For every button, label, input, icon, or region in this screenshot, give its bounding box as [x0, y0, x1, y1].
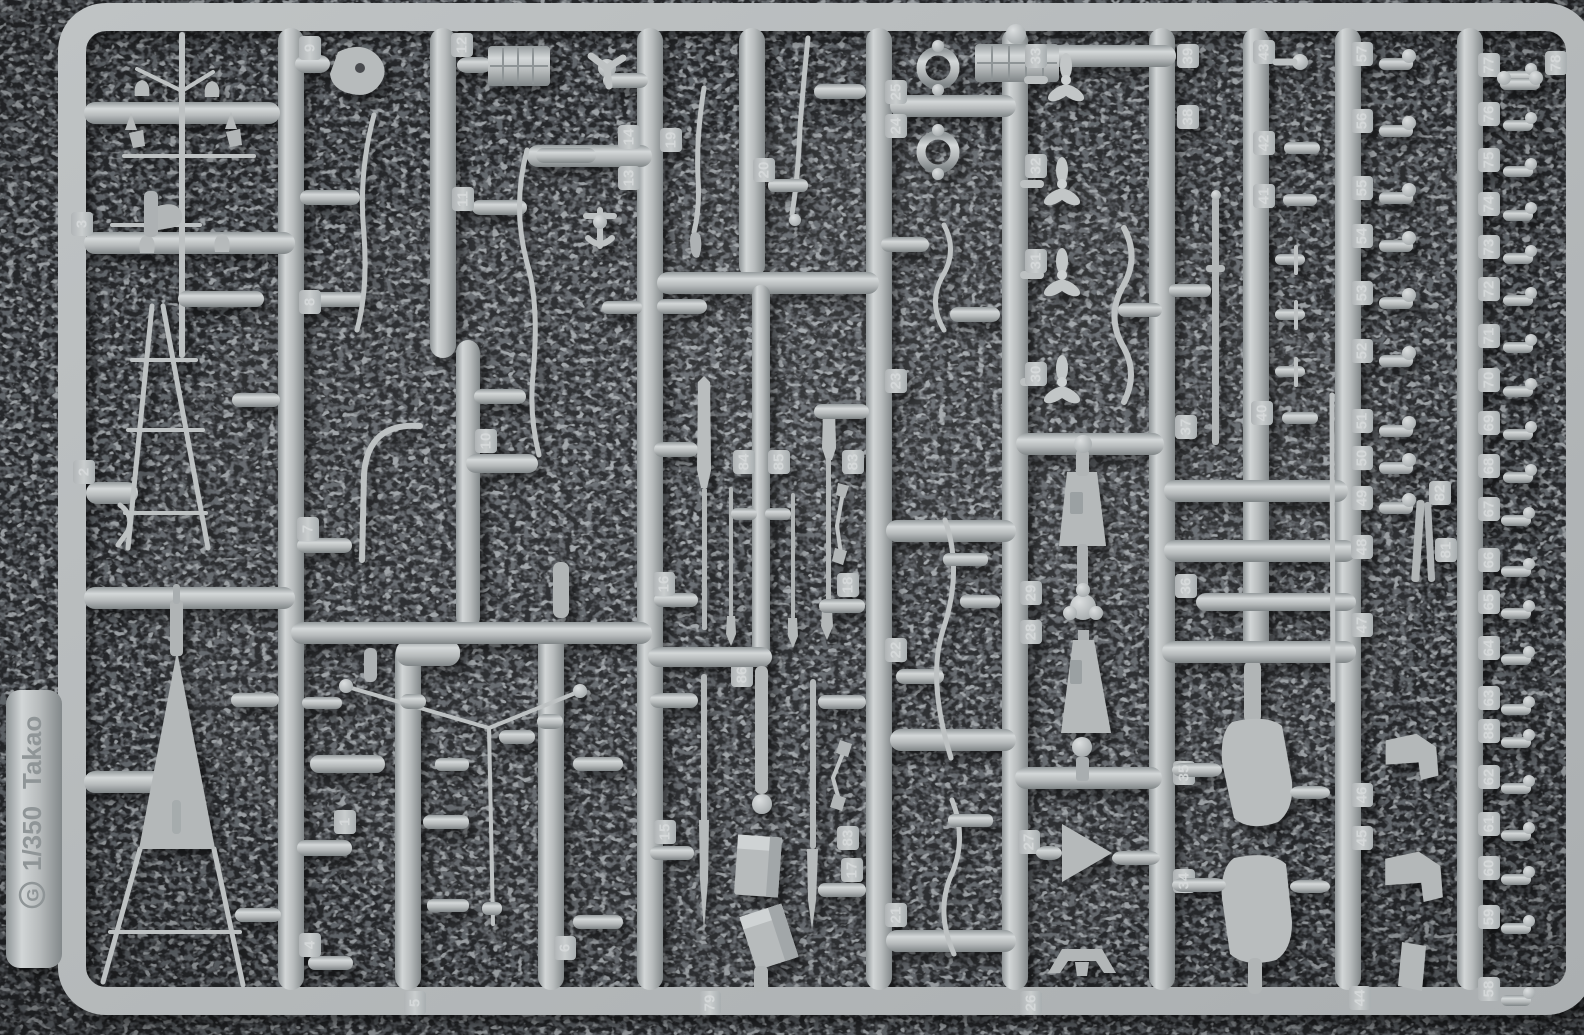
svg-text:49: 49	[1354, 490, 1371, 507]
svg-text:16: 16	[656, 576, 673, 593]
svg-text:14: 14	[621, 128, 638, 145]
svg-text:85: 85	[771, 454, 788, 471]
svg-text:30: 30	[1028, 366, 1045, 383]
svg-text:48: 48	[1354, 539, 1371, 556]
svg-text:64: 64	[1481, 639, 1498, 656]
svg-text:63: 63	[1481, 690, 1498, 707]
svg-text:58: 58	[1481, 981, 1498, 998]
svg-text:22: 22	[888, 642, 905, 659]
svg-text:37: 37	[1178, 419, 1195, 436]
svg-text:88: 88	[1481, 723, 1498, 740]
svg-text:77: 77	[1481, 57, 1498, 74]
svg-text:75: 75	[1481, 152, 1498, 169]
svg-text:15: 15	[657, 824, 674, 841]
svg-text:5: 5	[407, 999, 424, 1007]
svg-text:44: 44	[1352, 989, 1369, 1006]
svg-text:56: 56	[1354, 113, 1371, 130]
svg-text:78: 78	[1548, 55, 1565, 72]
svg-text:52: 52	[1354, 343, 1371, 360]
svg-text:24: 24	[888, 117, 905, 134]
svg-text:31: 31	[1028, 253, 1045, 270]
svg-text:72: 72	[1481, 281, 1498, 298]
svg-text:11: 11	[455, 191, 472, 207]
svg-text:35: 35	[1176, 765, 1193, 782]
svg-text:73: 73	[1481, 239, 1498, 256]
svg-text:38: 38	[1180, 109, 1197, 126]
svg-text:2: 2	[76, 468, 93, 476]
svg-text:4: 4	[302, 940, 319, 949]
svg-text:54: 54	[1354, 227, 1371, 244]
svg-text:G: G	[24, 888, 43, 901]
svg-text:10: 10	[478, 433, 495, 450]
svg-text:8: 8	[302, 298, 319, 306]
svg-text:51: 51	[1354, 413, 1371, 430]
svg-text:76: 76	[1481, 106, 1498, 123]
svg-text:84: 84	[736, 453, 753, 470]
svg-text:28: 28	[1023, 624, 1040, 641]
svg-text:39: 39	[1180, 48, 1197, 65]
svg-text:32: 32	[1028, 158, 1045, 175]
svg-text:21: 21	[888, 907, 905, 924]
svg-text:33: 33	[1028, 48, 1045, 65]
svg-text:47: 47	[1354, 617, 1371, 634]
svg-text:74: 74	[1481, 195, 1498, 212]
svg-text:6: 6	[557, 944, 574, 952]
svg-text:Takao: Takao	[17, 716, 47, 789]
svg-text:57: 57	[1354, 46, 1371, 63]
svg-text:3: 3	[74, 220, 91, 228]
svg-text:40: 40	[1254, 405, 1271, 422]
svg-text:29: 29	[1023, 585, 1040, 602]
svg-text:20: 20	[756, 162, 773, 179]
svg-text:19: 19	[663, 132, 680, 149]
svg-text:71: 71	[1481, 328, 1498, 345]
svg-text:79: 79	[702, 995, 719, 1012]
svg-text:26: 26	[1023, 995, 1040, 1012]
svg-text:9: 9	[302, 44, 319, 52]
svg-text:13: 13	[621, 170, 638, 187]
svg-text:12: 12	[454, 37, 471, 54]
svg-text:45: 45	[1354, 830, 1371, 847]
svg-text:42: 42	[1256, 135, 1273, 152]
svg-text:83: 83	[845, 454, 862, 471]
svg-text:66: 66	[1481, 552, 1498, 569]
svg-text:70: 70	[1481, 372, 1498, 389]
svg-text:36: 36	[1178, 578, 1195, 595]
svg-text:17: 17	[844, 862, 861, 879]
svg-text:27: 27	[1021, 834, 1038, 851]
svg-text:81: 81	[1438, 542, 1455, 559]
svg-text:46: 46	[1354, 787, 1371, 804]
svg-text:68: 68	[1481, 458, 1498, 475]
svg-text:43: 43	[1256, 44, 1273, 61]
svg-text:41: 41	[1256, 188, 1273, 205]
svg-text:18: 18	[840, 577, 857, 594]
svg-text:83: 83	[840, 830, 857, 847]
svg-text:25: 25	[888, 84, 905, 101]
svg-text:86: 86	[734, 667, 751, 684]
svg-text:61: 61	[1481, 816, 1498, 833]
svg-text:82: 82	[1432, 485, 1449, 502]
svg-text:50: 50	[1354, 450, 1371, 467]
svg-text:23: 23	[888, 373, 905, 390]
svg-text:67: 67	[1481, 501, 1498, 518]
svg-text:34: 34	[1176, 872, 1193, 889]
svg-text:1: 1	[337, 818, 354, 826]
svg-text:7: 7	[300, 525, 317, 533]
svg-text:62: 62	[1481, 769, 1498, 786]
svg-text:53: 53	[1354, 285, 1371, 302]
svg-text:55: 55	[1354, 180, 1371, 197]
svg-text:1/350: 1/350	[17, 806, 47, 871]
svg-text:65: 65	[1481, 594, 1498, 611]
svg-text:60: 60	[1481, 860, 1498, 877]
svg-text:69: 69	[1481, 415, 1498, 432]
svg-text:59: 59	[1481, 909, 1498, 926]
